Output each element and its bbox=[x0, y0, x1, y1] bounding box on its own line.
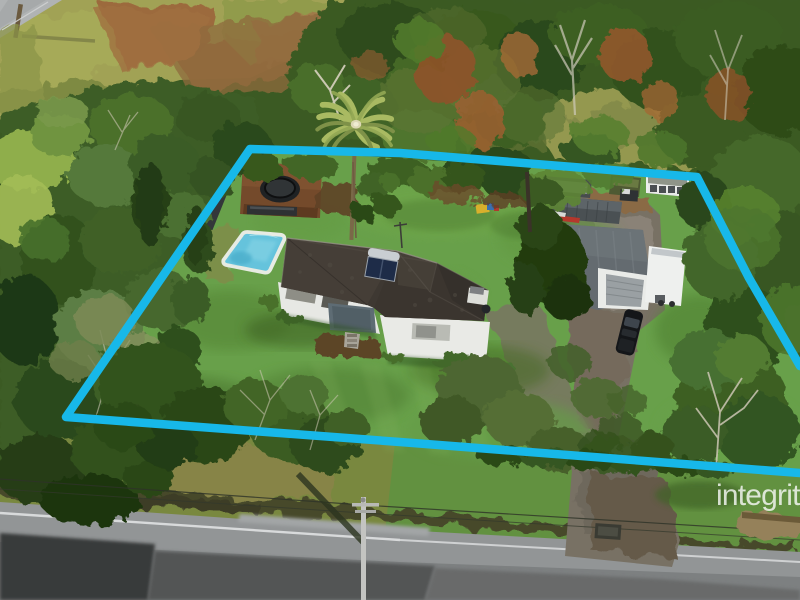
svg-text:integrity: integrity bbox=[716, 479, 800, 512]
